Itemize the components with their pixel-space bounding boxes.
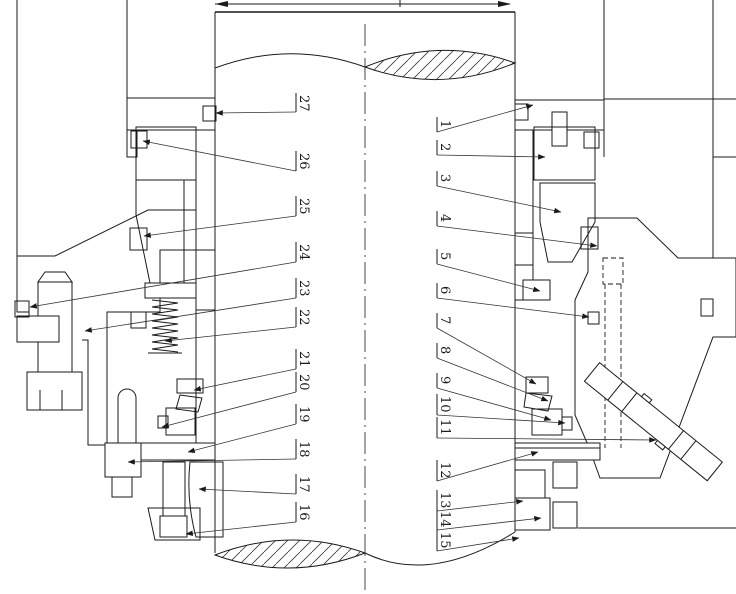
svg-text:13: 13	[437, 492, 452, 509]
o-ring	[176, 395, 202, 412]
callout-4: 4	[437, 211, 597, 246]
svg-text:12: 12	[437, 462, 452, 479]
shaft	[215, 12, 515, 594]
callout-23: 23	[85, 278, 311, 331]
right-sleeve-column	[515, 130, 533, 300]
svg-text:2: 2	[437, 143, 452, 151]
svg-text:21: 21	[296, 351, 311, 368]
svg-text:10: 10	[437, 396, 452, 413]
dimension-arrow-right	[498, 1, 511, 7]
o-ring	[526, 377, 548, 393]
left-seal-seat	[136, 127, 196, 180]
flush-pipe-fitting	[582, 360, 725, 484]
o-ring	[130, 228, 147, 250]
callout-1: 1	[437, 105, 533, 132]
right-drive-pin	[552, 112, 567, 146]
right-collar	[515, 443, 600, 460]
svg-text:26: 26	[296, 153, 311, 170]
callout-20: 20	[162, 372, 311, 427]
callout-25: 25	[144, 196, 311, 236]
svg-text:15: 15	[437, 532, 452, 549]
hidden-stud	[603, 258, 623, 448]
callout-21: 21	[194, 349, 311, 390]
callout-17: 17	[199, 474, 311, 494]
right-seal-face	[540, 183, 595, 262]
svg-text:11: 11	[437, 419, 452, 436]
svg-text:27: 27	[296, 95, 311, 112]
svg-text:17: 17	[296, 476, 311, 493]
o-ring	[203, 106, 216, 121]
o-ring	[177, 379, 203, 393]
o-ring	[584, 132, 599, 148]
svg-text:23: 23	[296, 280, 311, 297]
technical-drawing: 27 26 25 24 23 22 21	[0, 0, 736, 594]
left-step-block	[17, 316, 59, 342]
svg-text:7: 7	[437, 316, 452, 324]
callout-16: 16	[186, 502, 311, 534]
callout-15: 15	[437, 530, 519, 551]
callout-13: 13	[437, 490, 523, 511]
o-ring	[131, 312, 146, 328]
o-ring	[562, 417, 572, 430]
svg-text:3: 3	[437, 174, 452, 182]
right-bottom-ring	[515, 498, 550, 530]
right-assembly	[515, 100, 736, 530]
svg-text:20: 20	[296, 374, 311, 391]
callout-27: 27	[216, 93, 311, 113]
svg-text:1: 1	[437, 120, 452, 128]
svg-text:18: 18	[296, 441, 311, 458]
shaft-break-bottom-lens	[215, 540, 365, 568]
o-ring	[588, 312, 599, 324]
svg-text:5: 5	[437, 252, 452, 260]
callout-26: 26	[143, 141, 311, 171]
o-ring	[524, 393, 552, 411]
dimension-arrow-left	[215, 1, 228, 7]
callout-22: 22	[165, 307, 311, 341]
svg-text:8: 8	[437, 346, 452, 354]
shaft-break-top-arc	[215, 54, 365, 68]
svg-text:6: 6	[437, 286, 452, 294]
left-collar	[140, 443, 215, 460]
left-lower-housing	[189, 462, 223, 537]
svg-text:16: 16	[296, 504, 311, 521]
callout-3: 3	[437, 171, 561, 212]
left-assembly	[15, 98, 223, 540]
shaft-break-top-lens	[365, 50, 515, 79]
dimension-line	[215, 0, 511, 7]
left-lower-seal-face	[166, 408, 195, 435]
callout-11: 11	[437, 417, 656, 440]
callout-14: 14	[437, 509, 541, 530]
callout-2: 2	[437, 140, 545, 157]
svg-text:22: 22	[296, 309, 311, 326]
o-ring	[131, 131, 147, 148]
callouts-right: 1 2 3 4 5 6 7	[437, 105, 656, 551]
left-gland-plate	[127, 98, 215, 130]
svg-text:19: 19	[296, 406, 311, 423]
svg-text:25: 25	[296, 198, 311, 215]
svg-text:9: 9	[437, 376, 452, 384]
svg-text:14: 14	[437, 511, 452, 528]
o-ring	[515, 104, 528, 120]
drawing-canvas: 27 26 25 24 23 22 21	[0, 0, 736, 594]
svg-text:24: 24	[296, 244, 311, 261]
svg-text:4: 4	[437, 214, 452, 222]
callout-6: 6	[437, 283, 589, 317]
